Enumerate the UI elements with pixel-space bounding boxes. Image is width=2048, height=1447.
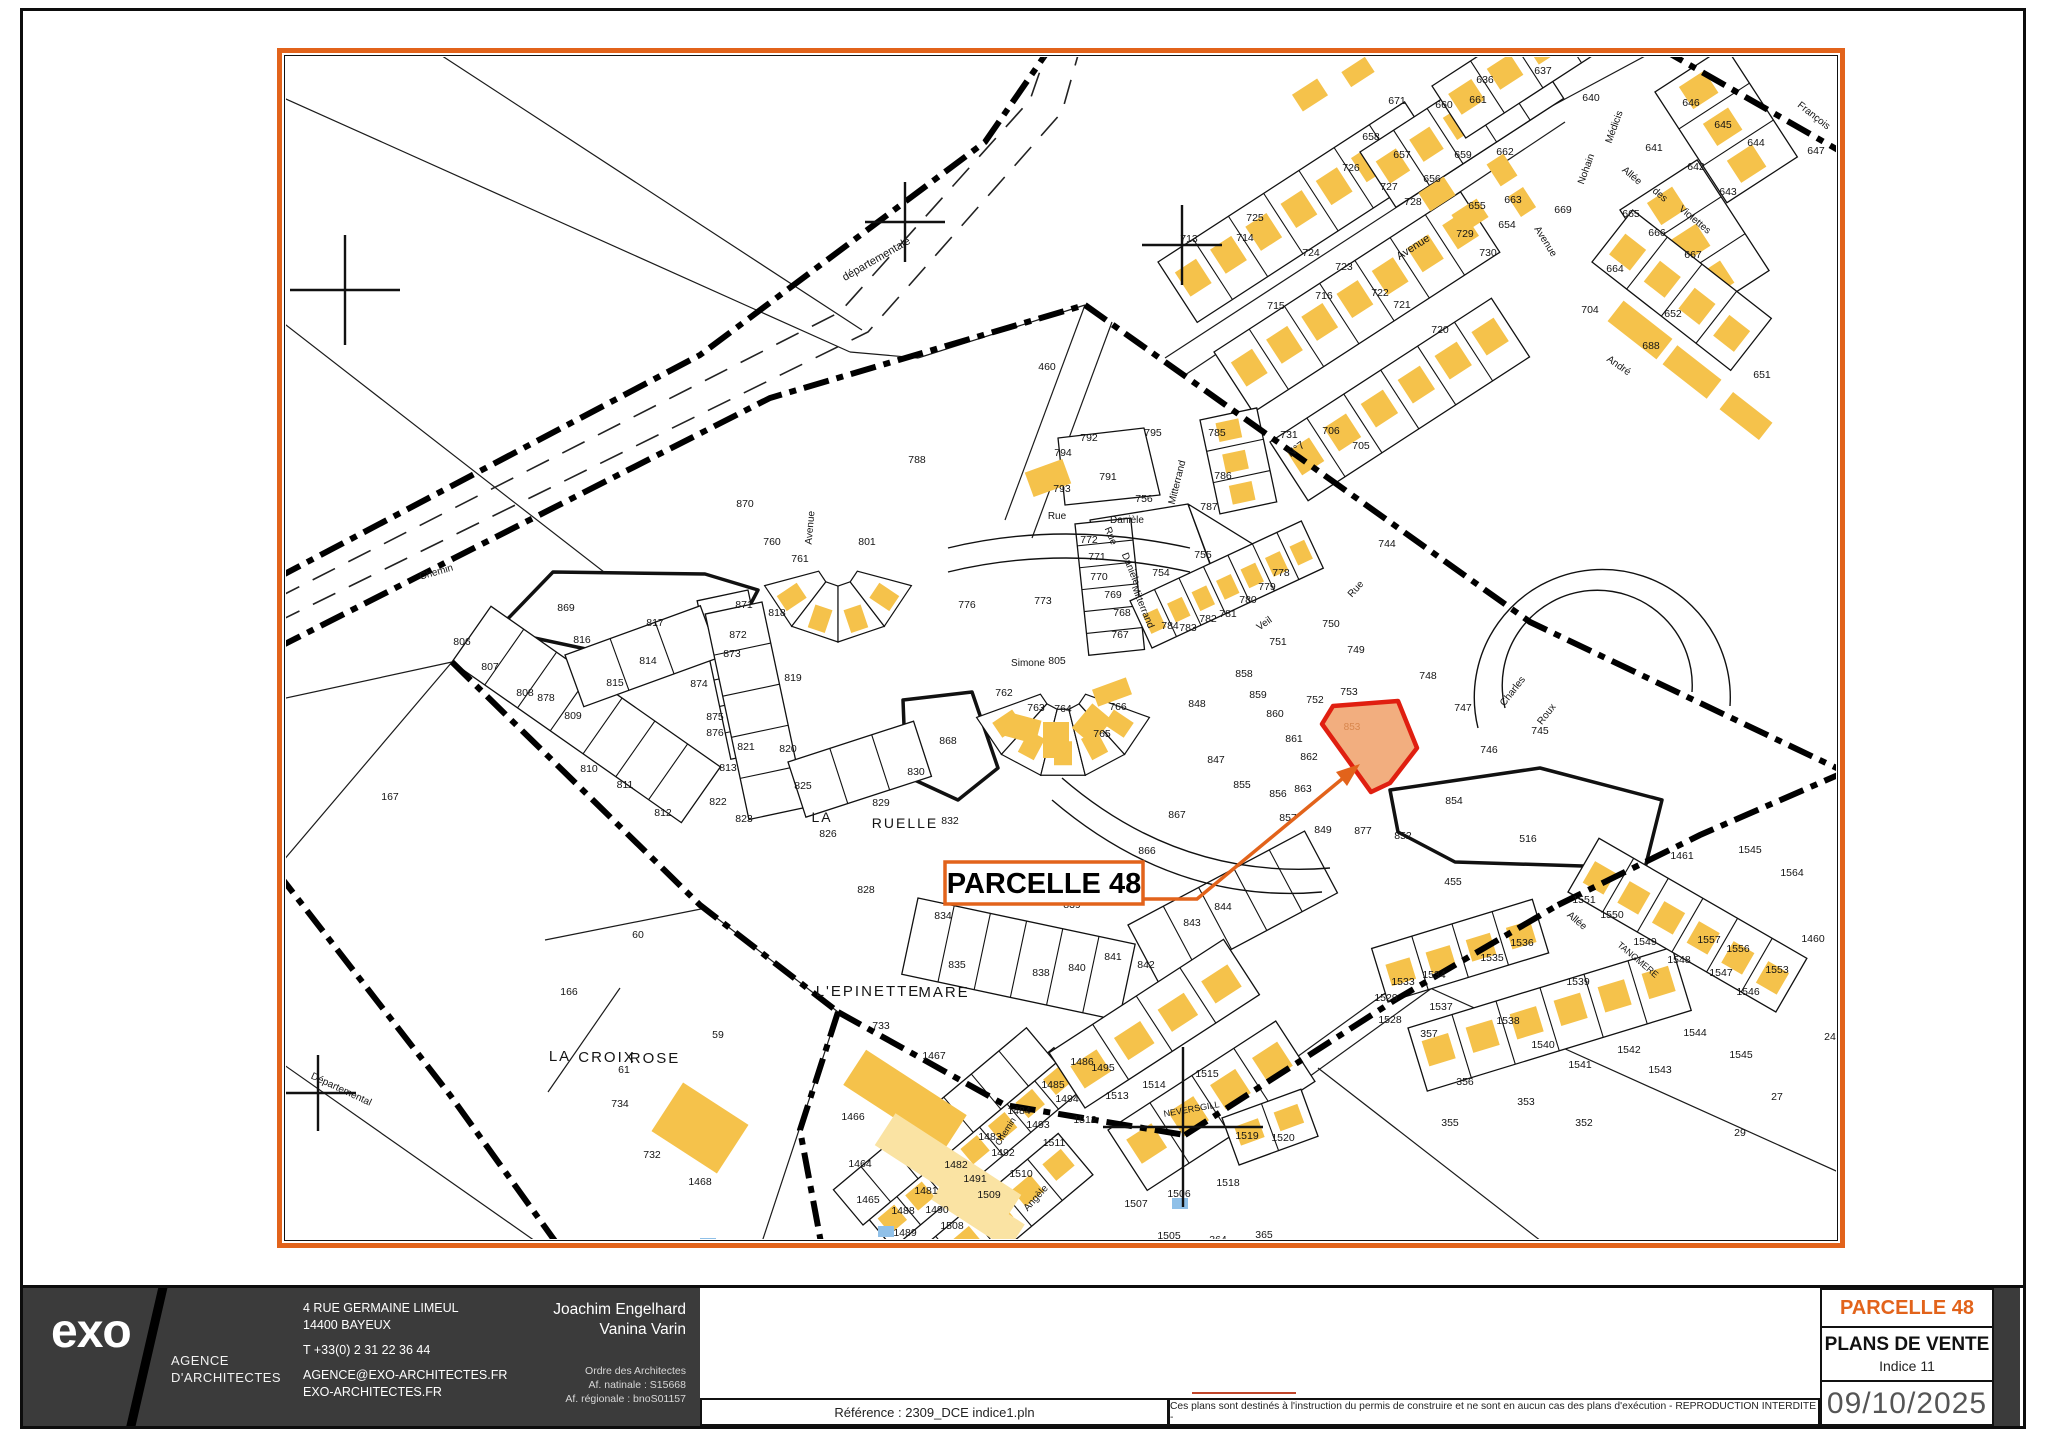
svg-text:731: 731 xyxy=(1280,429,1298,441)
svg-text:788: 788 xyxy=(908,454,926,466)
svg-text:1543: 1543 xyxy=(1648,1064,1672,1076)
svg-text:779: 779 xyxy=(1258,581,1276,593)
svg-text:1550: 1550 xyxy=(1600,909,1624,921)
svg-text:795: 795 xyxy=(1144,427,1162,439)
svg-text:715: 715 xyxy=(1267,300,1285,312)
svg-text:745: 745 xyxy=(1531,725,1549,737)
svg-text:1466: 1466 xyxy=(841,1111,865,1123)
svg-text:764: 764 xyxy=(1054,703,1072,715)
svg-text:1513: 1513 xyxy=(1105,1090,1129,1102)
svg-text:705: 705 xyxy=(1352,440,1370,452)
svg-text:1556: 1556 xyxy=(1726,943,1750,955)
svg-text:863: 863 xyxy=(1294,783,1312,795)
svg-text:832: 832 xyxy=(941,815,959,827)
svg-text:1518: 1518 xyxy=(1216,1177,1240,1189)
svg-text:786: 786 xyxy=(1214,470,1232,482)
reference-text: Référence : 2309_DCE indice1.pln xyxy=(834,1405,1034,1420)
svg-text:878: 878 xyxy=(537,692,555,704)
svg-text:1464: 1464 xyxy=(848,1158,872,1170)
svg-text:744: 744 xyxy=(1378,538,1396,550)
svg-text:793: 793 xyxy=(1053,483,1071,495)
svg-text:811: 811 xyxy=(617,779,634,791)
architect-2: Vanina Varin xyxy=(553,1320,686,1340)
svg-text:1529: 1529 xyxy=(1374,992,1398,1004)
parcel-title: PARCELLE 48 xyxy=(1822,1290,1992,1328)
svg-text:853: 853 xyxy=(1344,722,1361,733)
svg-text:830: 830 xyxy=(907,766,925,778)
svg-text:Allée: Allée xyxy=(1620,165,1644,188)
architect-1: Joachim Engelhard xyxy=(553,1300,686,1320)
svg-text:875: 875 xyxy=(706,711,724,723)
svg-text:1494: 1494 xyxy=(1055,1093,1079,1105)
svg-text:André: André xyxy=(1604,354,1633,379)
svg-text:817: 817 xyxy=(646,617,664,629)
svg-text:748: 748 xyxy=(1419,670,1437,682)
svg-text:1506: 1506 xyxy=(1167,1188,1191,1200)
svg-text:785: 785 xyxy=(1208,427,1226,439)
svg-text:Simone: Simone xyxy=(1011,658,1045,669)
svg-text:820: 820 xyxy=(779,743,797,755)
svg-text:767: 767 xyxy=(1111,629,1129,641)
svg-text:1488: 1488 xyxy=(891,1205,915,1217)
svg-text:773: 773 xyxy=(1034,595,1052,607)
svg-text:781: 781 xyxy=(1219,608,1237,620)
svg-text:844: 844 xyxy=(1214,901,1232,913)
order-line3: Af. régionale : bnoS01157 xyxy=(565,1392,686,1406)
svg-text:746: 746 xyxy=(1480,744,1498,756)
svg-text:754: 754 xyxy=(1152,567,1170,579)
svg-text:720: 720 xyxy=(1431,324,1449,336)
svg-text:724: 724 xyxy=(1302,247,1320,259)
svg-text:1533: 1533 xyxy=(1391,976,1415,988)
svg-text:772: 772 xyxy=(1080,534,1098,546)
svg-text:876: 876 xyxy=(706,727,724,739)
svg-text:752: 752 xyxy=(1306,694,1324,706)
svg-text:769: 769 xyxy=(1104,589,1122,601)
svg-text:Médicis: Médicis xyxy=(1604,109,1626,145)
house xyxy=(1341,57,1374,87)
highlight-parcel: 853 xyxy=(1322,701,1417,792)
svg-text:849: 849 xyxy=(1314,824,1332,836)
svg-text:MARE: MARE xyxy=(918,984,969,1001)
svg-text:872: 872 xyxy=(729,629,747,641)
svg-text:732: 732 xyxy=(643,1149,661,1161)
svg-text:816: 816 xyxy=(573,634,591,646)
svg-text:818: 818 xyxy=(768,607,786,619)
svg-text:763: 763 xyxy=(1027,702,1045,714)
svg-text:1515: 1515 xyxy=(1195,1068,1219,1080)
svg-text:RUELLE: RUELLE xyxy=(872,815,938,831)
svg-text:726: 726 xyxy=(1342,162,1360,174)
svg-text:664: 664 xyxy=(1606,263,1624,275)
svg-text:364: 364 xyxy=(1209,1234,1227,1239)
svg-text:750: 750 xyxy=(1322,618,1340,630)
svg-text:667: 667 xyxy=(1684,249,1702,261)
svg-text:855: 855 xyxy=(1233,779,1251,791)
parcel-48-highlight xyxy=(1322,701,1417,792)
disclaimer-strip: Ces plans sont destinés à l'instruction … xyxy=(1168,1398,1820,1426)
svg-text:1495: 1495 xyxy=(1091,1062,1115,1074)
agency-block: exo AGENCE D'ARCHITECTES 4 RUE GERMAINE … xyxy=(23,1288,700,1426)
svg-text:783: 783 xyxy=(1179,622,1197,634)
svg-text:655: 655 xyxy=(1468,200,1486,212)
pool xyxy=(700,1238,716,1239)
doc-indice: Indice 11 xyxy=(1879,1358,1935,1374)
svg-text:848: 848 xyxy=(1188,698,1206,710)
svg-text:1510: 1510 xyxy=(1009,1168,1033,1180)
svg-text:1465: 1465 xyxy=(856,1194,880,1206)
svg-text:780: 780 xyxy=(1239,594,1257,606)
svg-text:365: 365 xyxy=(1255,1229,1273,1239)
svg-text:826: 826 xyxy=(819,828,837,840)
svg-text:1545: 1545 xyxy=(1738,844,1762,856)
svg-text:651: 651 xyxy=(1753,369,1771,381)
svg-text:730: 730 xyxy=(1479,247,1497,259)
svg-text:59: 59 xyxy=(712,1029,724,1041)
svg-text:654: 654 xyxy=(1498,219,1516,231)
svg-text:1507: 1507 xyxy=(1124,1198,1148,1210)
svg-text:787: 787 xyxy=(1200,501,1218,513)
svg-text:829: 829 xyxy=(872,797,890,809)
svg-text:714: 714 xyxy=(1236,232,1254,244)
svg-text:646: 646 xyxy=(1682,97,1700,109)
doc-type-cell: PLANS DE VENTE Indice 11 xyxy=(1822,1328,1992,1382)
svg-text:815: 815 xyxy=(606,677,624,689)
svg-text:1489: 1489 xyxy=(893,1227,917,1239)
svg-text:723: 723 xyxy=(1335,261,1353,273)
plan-sheet: 8536716376366406606616586576596626567267… xyxy=(0,0,2048,1447)
svg-text:665: 665 xyxy=(1622,208,1640,220)
svg-text:Danièle: Danièle xyxy=(1110,515,1144,526)
svg-text:871: 871 xyxy=(735,599,753,611)
svg-text:770: 770 xyxy=(1090,571,1108,583)
svg-text:859: 859 xyxy=(1249,689,1267,701)
svg-text:877: 877 xyxy=(1354,825,1372,837)
svg-text:LA: LA xyxy=(549,1048,571,1065)
svg-text:834: 834 xyxy=(934,910,952,922)
svg-text:734: 734 xyxy=(611,1098,629,1110)
house xyxy=(1720,392,1773,440)
svg-text:835: 835 xyxy=(948,959,966,971)
svg-text:791: 791 xyxy=(1099,471,1117,483)
svg-text:801: 801 xyxy=(858,536,876,548)
svg-text:1505: 1505 xyxy=(1157,1230,1181,1239)
svg-text:809: 809 xyxy=(564,710,582,722)
svg-text:814: 814 xyxy=(639,655,657,667)
svg-text:637: 637 xyxy=(1534,65,1552,77)
svg-text:1520: 1520 xyxy=(1271,1132,1295,1144)
svg-text:727: 727 xyxy=(1380,181,1398,193)
svg-text:776: 776 xyxy=(958,599,976,611)
svg-text:1544: 1544 xyxy=(1683,1027,1707,1039)
svg-text:656: 656 xyxy=(1423,173,1441,185)
address-line1: 4 RUE GERMAINE LIMEUL xyxy=(303,1300,507,1317)
svg-text:1545: 1545 xyxy=(1729,1049,1753,1061)
svg-text:722: 722 xyxy=(1371,287,1389,299)
svg-text:843: 843 xyxy=(1183,917,1201,929)
svg-text:1482: 1482 xyxy=(944,1159,968,1171)
svg-text:1460: 1460 xyxy=(1801,933,1825,945)
revision-mark xyxy=(1192,1392,1296,1394)
svg-text:755: 755 xyxy=(1194,549,1212,561)
svg-text:828: 828 xyxy=(857,884,875,896)
pool xyxy=(878,1226,894,1237)
svg-text:819: 819 xyxy=(784,672,802,684)
svg-text:778: 778 xyxy=(1272,567,1290,579)
svg-text:1519: 1519 xyxy=(1235,1130,1259,1142)
house xyxy=(1043,722,1069,758)
svg-text:870: 870 xyxy=(736,498,754,510)
svg-text:852: 852 xyxy=(1394,830,1412,842)
svg-text:660: 660 xyxy=(1435,99,1453,111)
svg-text:856: 856 xyxy=(1269,788,1287,800)
architect-order-info: Ordre des Architectes Af. natinale : S15… xyxy=(565,1364,686,1406)
reference-strip: Référence : 2309_DCE indice1.pln xyxy=(700,1398,1168,1426)
svg-text:704: 704 xyxy=(1581,304,1599,316)
svg-text:658: 658 xyxy=(1362,131,1380,143)
svg-text:782: 782 xyxy=(1199,613,1217,625)
svg-text:Nohain: Nohain xyxy=(1576,152,1597,186)
agency-label-line1: AGENCE xyxy=(171,1352,281,1369)
svg-text:27: 27 xyxy=(1771,1091,1783,1103)
svg-text:841: 841 xyxy=(1104,951,1122,963)
svg-text:1536: 1536 xyxy=(1510,937,1534,949)
svg-text:645: 645 xyxy=(1714,119,1732,131)
svg-text:663: 663 xyxy=(1504,194,1522,206)
svg-text:1535: 1535 xyxy=(1480,952,1504,964)
svg-text:747: 747 xyxy=(1454,702,1472,714)
svg-text:760: 760 xyxy=(763,536,781,548)
svg-text:355: 355 xyxy=(1441,1117,1459,1129)
svg-text:671: 671 xyxy=(1388,95,1406,107)
svg-text:771: 771 xyxy=(1088,551,1106,563)
svg-text:768: 768 xyxy=(1113,607,1131,619)
large-building xyxy=(651,1082,748,1173)
svg-text:825: 825 xyxy=(794,780,812,792)
house xyxy=(1487,154,1518,187)
agency-logo: exo xyxy=(51,1304,131,1359)
svg-text:733: 733 xyxy=(872,1020,890,1032)
svg-text:1548: 1548 xyxy=(1667,954,1691,966)
svg-text:652: 652 xyxy=(1664,308,1682,320)
svg-text:516: 516 xyxy=(1519,833,1537,845)
svg-text:749: 749 xyxy=(1347,644,1365,656)
svg-text:847: 847 xyxy=(1207,754,1225,766)
svg-text:644: 644 xyxy=(1747,137,1765,149)
svg-text:1508: 1508 xyxy=(940,1220,964,1232)
svg-text:LA: LA xyxy=(811,809,832,825)
svg-text:24: 24 xyxy=(1824,1031,1836,1043)
svg-text:166: 166 xyxy=(560,986,578,998)
svg-text:643: 643 xyxy=(1719,186,1737,198)
svg-text:1541: 1541 xyxy=(1568,1059,1592,1071)
svg-text:858: 858 xyxy=(1235,668,1253,680)
svg-text:729: 729 xyxy=(1456,228,1474,240)
svg-text:792: 792 xyxy=(1080,432,1098,444)
svg-text:1546: 1546 xyxy=(1736,986,1760,998)
svg-text:1539: 1539 xyxy=(1566,976,1590,988)
title-box: PARCELLE 48 PLANS DE VENTE Indice 11 09/… xyxy=(1820,1288,1994,1426)
svg-text:départementale: départementale xyxy=(840,235,912,284)
svg-text:1485: 1485 xyxy=(1041,1079,1065,1091)
svg-text:1493: 1493 xyxy=(1026,1119,1050,1131)
svg-text:716: 716 xyxy=(1315,290,1333,302)
svg-text:Mitterrand: Mitterrand xyxy=(1167,459,1189,505)
svg-text:812: 812 xyxy=(654,807,672,819)
disclaimer-text: Ces plans sont destinés à l'instruction … xyxy=(1170,1401,1818,1423)
svg-text:1492: 1492 xyxy=(991,1147,1015,1159)
svg-text:728: 728 xyxy=(1404,196,1422,208)
svg-text:751: 751 xyxy=(1269,636,1287,648)
svg-text:766: 766 xyxy=(1109,701,1127,713)
svg-text:1514: 1514 xyxy=(1142,1079,1166,1091)
svg-text:460: 460 xyxy=(1038,361,1056,373)
svg-text:ROSE: ROSE xyxy=(630,1050,681,1067)
svg-text:167: 167 xyxy=(381,791,399,803)
svg-text:706: 706 xyxy=(1322,425,1340,437)
svg-text:L'EPINETTE: L'EPINETTE xyxy=(816,983,921,1000)
agency-phone: T +33(0) 2 31 22 36 44 xyxy=(303,1342,507,1359)
svg-text:666: 666 xyxy=(1648,227,1666,239)
agency-label: AGENCE D'ARCHITECTES xyxy=(171,1352,281,1386)
svg-text:1512: 1512 xyxy=(1073,1114,1097,1126)
svg-text:840: 840 xyxy=(1068,962,1086,974)
svg-text:821: 821 xyxy=(737,741,755,753)
svg-text:659: 659 xyxy=(1454,149,1472,161)
svg-text:1534: 1534 xyxy=(1422,969,1446,981)
svg-text:753: 753 xyxy=(1340,686,1358,698)
svg-text:1468: 1468 xyxy=(688,1176,712,1188)
svg-text:60: 60 xyxy=(632,929,644,941)
doc-type: PLANS DE VENTE xyxy=(1825,1334,1990,1356)
svg-text:869: 869 xyxy=(557,602,575,614)
svg-text:1511: 1511 xyxy=(1043,1137,1066,1149)
svg-text:641: 641 xyxy=(1645,142,1663,154)
svg-text:455: 455 xyxy=(1444,876,1462,888)
svg-text:Avenue: Avenue xyxy=(1532,224,1559,259)
svg-text:352: 352 xyxy=(1575,1117,1593,1129)
svg-text:1491: 1491 xyxy=(963,1173,987,1185)
svg-text:1540: 1540 xyxy=(1531,1039,1555,1051)
cadastral-map: 8536716376366406606616586576596626567267… xyxy=(286,57,1836,1239)
svg-text:1481: 1481 xyxy=(914,1185,938,1197)
svg-text:Chemin: Chemin xyxy=(418,563,454,583)
svg-text:808: 808 xyxy=(516,687,534,699)
svg-text:1537: 1537 xyxy=(1429,1001,1453,1013)
svg-text:640: 640 xyxy=(1582,92,1600,104)
svg-text:873: 873 xyxy=(723,648,741,660)
svg-text:854: 854 xyxy=(1445,795,1463,807)
svg-text:1461: 1461 xyxy=(1670,850,1694,862)
agency-label-line2: D'ARCHITECTES xyxy=(171,1369,281,1386)
svg-text:1486: 1486 xyxy=(1070,1056,1094,1068)
svg-text:765: 765 xyxy=(1093,728,1111,740)
svg-text:867: 867 xyxy=(1168,809,1186,821)
svg-text:1467: 1467 xyxy=(922,1050,946,1062)
svg-text:713: 713 xyxy=(1180,233,1198,245)
svg-text:1538: 1538 xyxy=(1496,1015,1520,1027)
agency-website: EXO-ARCHITECTES.FR xyxy=(303,1384,507,1401)
agency-address: 4 RUE GERMAINE LIMEUL 14400 BAYEUX T +33… xyxy=(303,1300,507,1401)
svg-text:842: 842 xyxy=(1137,959,1155,971)
svg-text:1551: 1551 xyxy=(1572,894,1596,906)
svg-text:838: 838 xyxy=(1032,967,1050,979)
svg-text:353: 353 xyxy=(1517,1096,1535,1108)
address-line2: 14400 BAYEUX xyxy=(303,1317,507,1334)
svg-text:1549: 1549 xyxy=(1633,936,1657,948)
svg-text:784: 784 xyxy=(1161,620,1179,632)
svg-text:810: 810 xyxy=(580,763,598,775)
svg-text:357: 357 xyxy=(1420,1028,1438,1040)
svg-text:794: 794 xyxy=(1054,447,1072,459)
svg-text:647: 647 xyxy=(1807,145,1825,157)
svg-text:Rue: Rue xyxy=(1346,579,1367,600)
svg-text:669: 669 xyxy=(1554,204,1572,216)
svg-text:Rue: Rue xyxy=(1048,511,1067,522)
titleband-filler xyxy=(1994,1288,2020,1426)
order-line2: Af. natinale : S15668 xyxy=(565,1378,686,1392)
architect-names: Joachim Engelhard Vanina Varin xyxy=(553,1300,686,1340)
svg-text:756: 756 xyxy=(1135,493,1153,505)
svg-text:Roux: Roux xyxy=(1536,702,1559,727)
svg-text:862: 862 xyxy=(1300,751,1318,763)
doc-date: 09/10/2025 xyxy=(1822,1382,1992,1426)
svg-text:822: 822 xyxy=(709,796,727,808)
house xyxy=(1292,78,1328,111)
svg-text:356: 356 xyxy=(1456,1076,1474,1088)
svg-text:1553: 1553 xyxy=(1765,964,1789,976)
svg-text:725: 725 xyxy=(1246,212,1264,224)
svg-text:1542: 1542 xyxy=(1617,1044,1641,1056)
svg-text:642: 642 xyxy=(1687,161,1705,173)
svg-text:Avenue: Avenue xyxy=(804,510,818,545)
svg-text:636: 636 xyxy=(1476,74,1494,86)
svg-text:688: 688 xyxy=(1642,340,1660,352)
svg-text:Allée: Allée xyxy=(1565,910,1589,933)
svg-text:1557: 1557 xyxy=(1697,934,1721,946)
svg-text:813: 813 xyxy=(719,762,737,774)
svg-text:861: 861 xyxy=(1285,733,1303,745)
svg-text:823: 823 xyxy=(735,813,753,825)
svg-text:1490: 1490 xyxy=(925,1204,949,1216)
svg-text:805: 805 xyxy=(1048,655,1066,667)
svg-text:1564: 1564 xyxy=(1780,867,1804,879)
svg-text:1509: 1509 xyxy=(977,1189,1001,1201)
agency-email: AGENCE@EXO-ARCHITECTES.FR xyxy=(303,1367,507,1384)
svg-text:868: 868 xyxy=(939,735,957,747)
svg-text:721: 721 xyxy=(1393,299,1411,311)
svg-text:1484: 1484 xyxy=(1007,1105,1031,1117)
order-line1: Ordre des Architectes xyxy=(565,1364,686,1378)
svg-text:CROIX: CROIX xyxy=(578,1049,636,1066)
svg-text:29: 29 xyxy=(1734,1127,1746,1139)
svg-text:807: 807 xyxy=(481,661,499,673)
svg-text:860: 860 xyxy=(1266,708,1284,720)
svg-text:1547: 1547 xyxy=(1709,967,1733,979)
svg-text:657: 657 xyxy=(1393,149,1411,161)
svg-text:662: 662 xyxy=(1496,146,1514,158)
svg-text:1528: 1528 xyxy=(1378,1014,1402,1026)
svg-text:874: 874 xyxy=(690,678,708,690)
svg-text:661: 661 xyxy=(1469,94,1487,106)
callout-text: PARCELLE 48 xyxy=(947,868,1141,900)
svg-text:866: 866 xyxy=(1138,845,1156,857)
svg-text:Veil: Veil xyxy=(1255,615,1275,633)
svg-text:761: 761 xyxy=(791,553,809,565)
svg-text:806: 806 xyxy=(453,636,471,648)
svg-text:762: 762 xyxy=(995,687,1013,699)
